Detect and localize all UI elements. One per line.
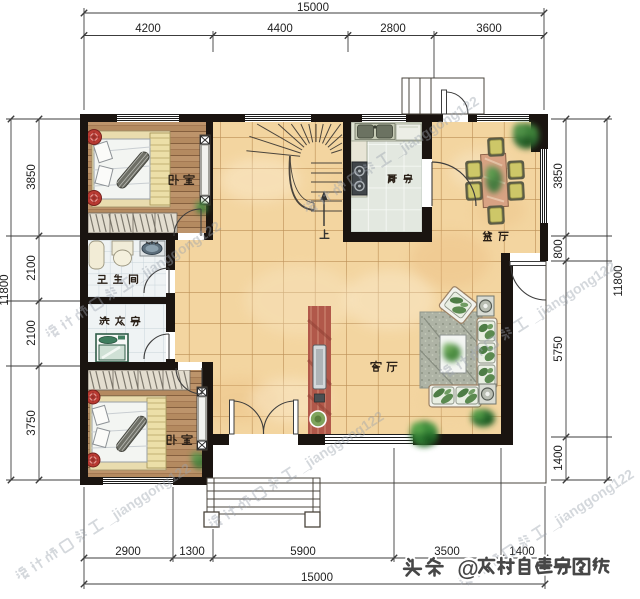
svg-text:2900: 2900 <box>115 546 141 558</box>
svg-text:3500: 3500 <box>434 546 460 558</box>
svg-text:4200: 4200 <box>135 23 161 35</box>
svg-text:3850: 3850 <box>26 164 38 190</box>
svg-text:1300: 1300 <box>179 546 205 558</box>
svg-text:@: @ <box>457 556 478 581</box>
svg-text:15000: 15000 <box>297 2 329 14</box>
svg-text:15000: 15000 <box>301 572 333 584</box>
svg-text:2100: 2100 <box>26 320 38 346</box>
svg-text:5900: 5900 <box>290 546 316 558</box>
svg-text:11800: 11800 <box>0 274 11 305</box>
svg-text:5750: 5750 <box>553 336 565 362</box>
svg-text:3600: 3600 <box>476 23 502 35</box>
svg-text:2800: 2800 <box>380 23 406 35</box>
svg-text:1400: 1400 <box>553 445 565 471</box>
svg-text:3850: 3850 <box>553 163 565 189</box>
svg-text:800: 800 <box>553 239 565 258</box>
svg-text:4400: 4400 <box>267 23 293 35</box>
svg-text:2100: 2100 <box>26 255 38 281</box>
svg-text:3750: 3750 <box>26 410 38 436</box>
